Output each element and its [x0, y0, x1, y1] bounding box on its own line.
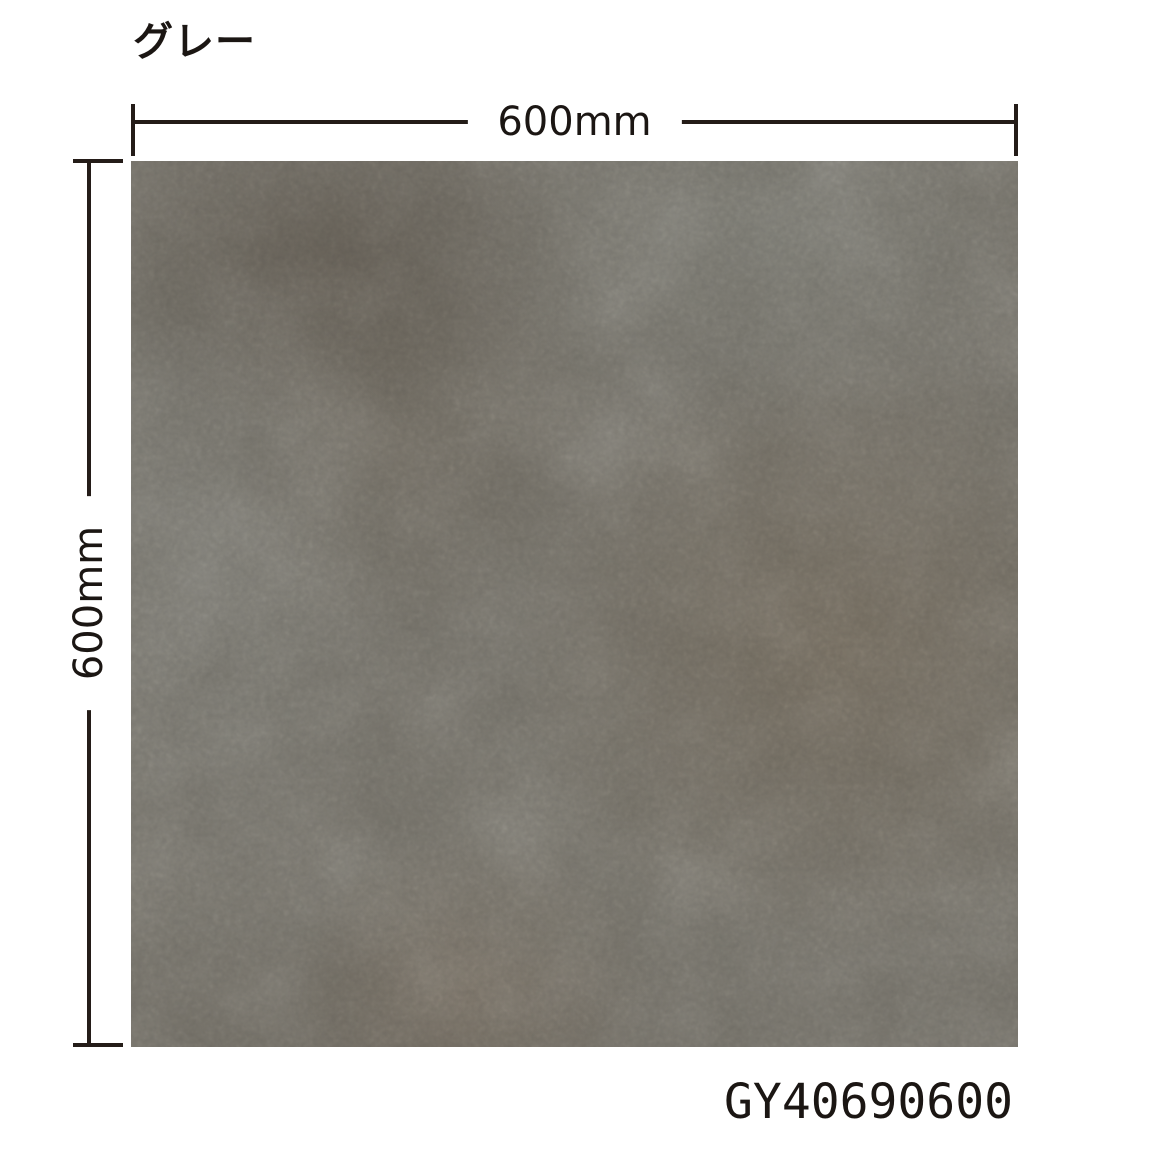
tile-texture-grain [131, 161, 1018, 1047]
product-code: GY40690600 [724, 1078, 1013, 1126]
catalog-swatch-panel: グレー 600mm 600mm [0, 0, 1156, 1170]
height-dimension: 600mm [73, 159, 123, 1047]
width-dimension-tick-left [131, 104, 135, 156]
tile-swatch-image [131, 161, 1018, 1047]
height-dimension-tick-bottom [73, 1043, 123, 1047]
height-dimension-label: 600mm [69, 496, 109, 710]
width-dimension: 600mm [131, 104, 1018, 156]
page-title: グレー [133, 20, 256, 64]
width-dimension-label: 600mm [467, 102, 681, 142]
width-dimension-tick-right [1014, 104, 1018, 156]
height-dimension-tick-top [73, 159, 123, 163]
